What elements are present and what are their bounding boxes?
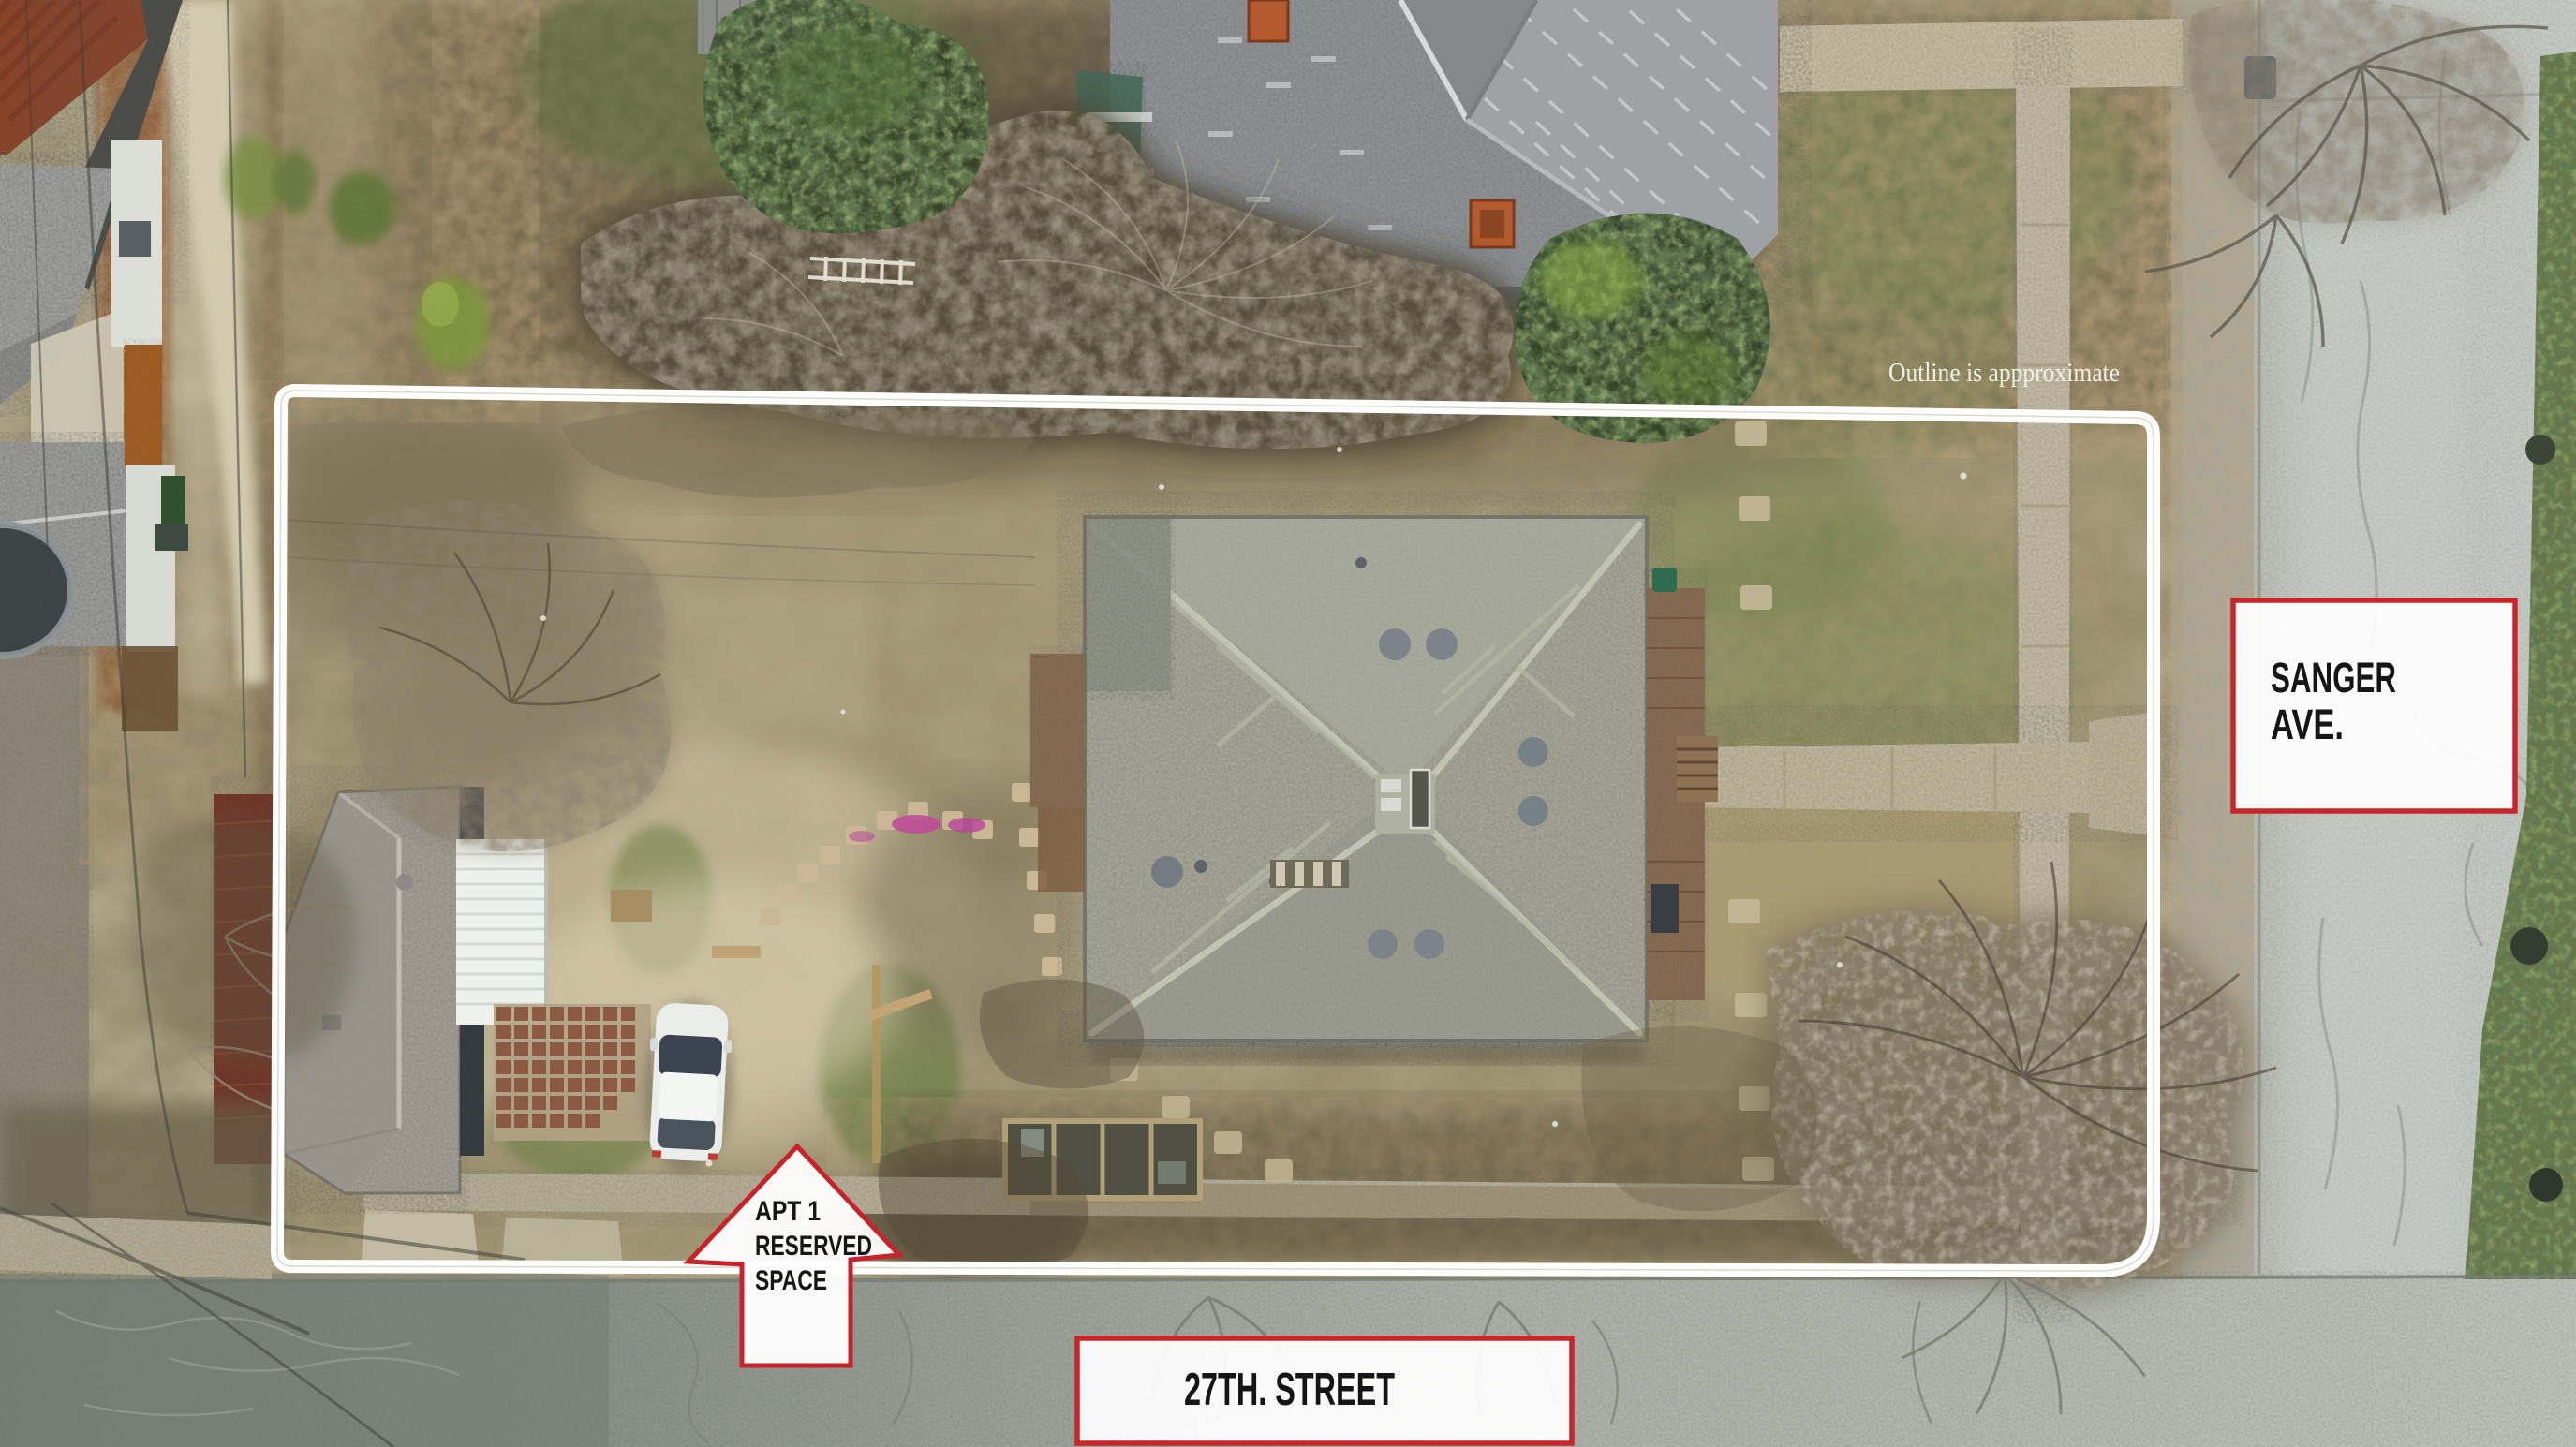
- svg-text:APT 1: APT 1: [755, 1196, 821, 1227]
- svg-text:SPACE: SPACE: [755, 1265, 827, 1296]
- svg-text:Outline is appproximate: Outline is appproximate: [1888, 359, 2120, 388]
- svg-text:27TH. STREET: 27TH. STREET: [1184, 1365, 1395, 1415]
- svg-text:RESERVED: RESERVED: [755, 1231, 872, 1262]
- svg-text:SANGER: SANGER: [2271, 654, 2396, 701]
- svg-text:AVE.: AVE.: [2271, 701, 2344, 748]
